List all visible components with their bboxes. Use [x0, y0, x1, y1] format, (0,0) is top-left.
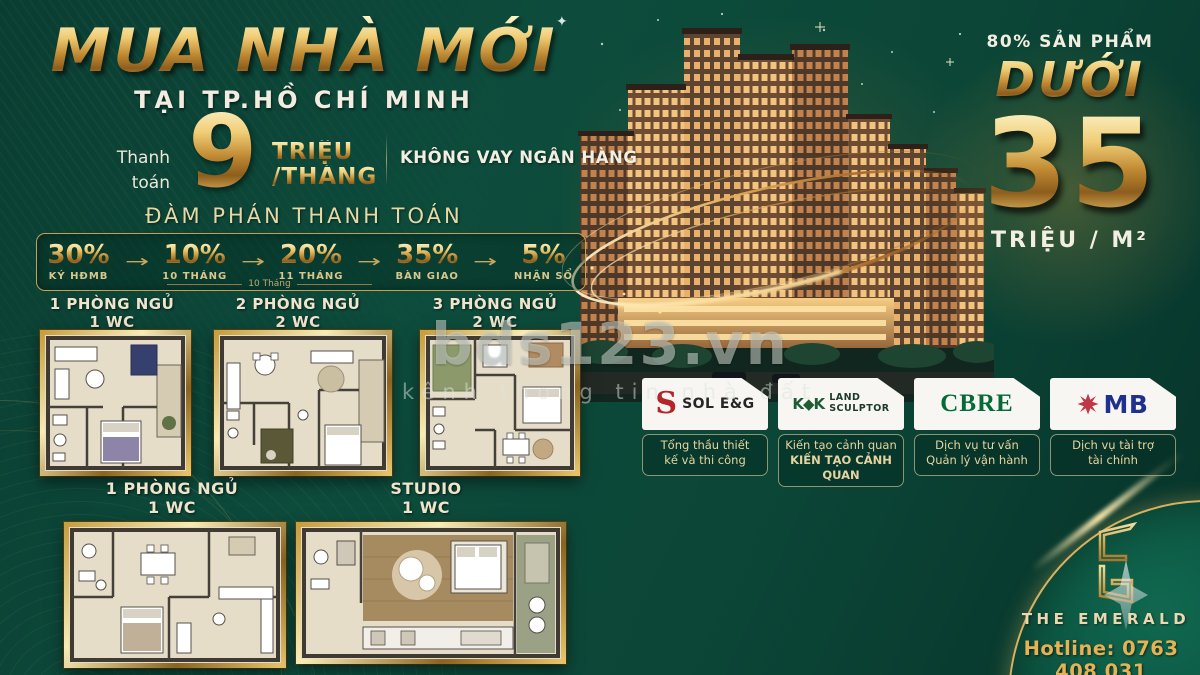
floorplan-label: 2 PHÒNG NGỦ2 WC — [212, 296, 384, 331]
caption-line: Tổng thầu thiết — [647, 438, 763, 453]
floorplan-label: 3 PHÒNG NGỦ2 WC — [418, 296, 572, 331]
floorplan-rooms: 1 PHÒNG NGỦ — [36, 296, 188, 314]
partner-name: LANDSCULPTOR — [829, 393, 889, 415]
schedule-step: 20% 11 THÁNG — [270, 242, 352, 282]
partner-card-mb: MB Dịch vụ tài trợ tài chính — [1050, 378, 1176, 487]
sol-s-icon: S — [655, 389, 677, 419]
payment-unit-top: TRIỆU — [272, 140, 377, 165]
cbre-logo: CBRE — [914, 378, 1040, 430]
arrow-right-icon: → — [241, 252, 265, 272]
partner-card-landsculptor: K◆K LANDSCULPTOR Kiến tạo cảnh quan KIẾN… — [778, 378, 904, 487]
developer-brand: THE EMERALD — [1018, 610, 1194, 628]
poster: MUA NHÀ MỚI ✦ TẠI TP.HỒ CHÍ MINH Thanh t… — [0, 0, 1200, 675]
partner-caption: Dịch vụ tài trợ tài chính — [1050, 434, 1176, 476]
step-percent: 10% — [154, 242, 236, 268]
caption-line: tài chính — [1055, 453, 1171, 468]
floorplan-rooms: 2 PHÒNG NGỦ — [212, 296, 384, 314]
caption-line: Quản lý vận hành — [919, 453, 1035, 468]
partner-name: MB — [1104, 390, 1149, 419]
caption-line: KIẾN TẠO CẢNH QUAN — [783, 453, 899, 483]
arrow-right-icon: → — [125, 252, 149, 272]
schedule-step: 35% BÀN GIAO — [386, 242, 468, 282]
land-sculptor-emblem-icon: K◆K — [792, 395, 824, 413]
partner-caption: Kiến tạo cảnh quan KIẾN TẠO CẢNH QUAN — [778, 434, 904, 487]
no-loan-text: KHÔNG VAY NGÂN HÀNG — [400, 148, 637, 167]
arrow-right-icon: → — [357, 252, 381, 272]
step-percent: 35% — [386, 242, 468, 268]
floorplan-wc: 2 WC — [418, 314, 572, 332]
floorplan-wc: 2 WC — [212, 314, 384, 332]
duration-note: 10 Tháng — [167, 279, 372, 289]
mb-logo: MB — [1050, 378, 1176, 430]
floorplan-label: 1 PHÒNG NGỦ1 WC — [36, 296, 188, 331]
land-sculptor-logo: K◆K LANDSCULPTOR — [778, 378, 904, 430]
schedule-step: 10% 10 THÁNG — [154, 242, 236, 282]
floorplan-image-1br — [40, 330, 191, 476]
partner-card-sol: S SOL E&G Tổng thầu thiết kế và thi công — [642, 378, 768, 487]
partners-row: S SOL E&G Tổng thầu thiết kế và thi công… — [642, 378, 1176, 487]
schedule-heading: ĐÀM PHÁN THANH TOÁN — [0, 204, 608, 228]
payment-amount: 9 — [188, 104, 258, 199]
payment-prefix: Thanh toán — [104, 146, 170, 195]
partner-name: CBRE — [940, 390, 1013, 418]
floorplan-wc: 1 WC — [36, 314, 188, 332]
floorplan-rooms: STUDIO — [294, 480, 558, 499]
caption-line: Dịch vụ tài trợ — [1055, 438, 1171, 453]
main-title: MUA NHÀ MỚI — [0, 16, 608, 86]
caption-line: Dịch vụ tư vấn — [919, 438, 1035, 453]
floorplan-label: STUDIO1 WC — [294, 480, 558, 518]
floorplan-label: 1 PHÒNG NGỦ1 WC — [60, 480, 284, 518]
floorplan-rooms: 3 PHÒNG NGỦ — [418, 296, 572, 314]
caption-line: Kiến tạo cảnh quan — [783, 438, 899, 453]
step-label: BÀN GIAO — [386, 271, 468, 282]
step-percent: 20% — [270, 242, 352, 268]
step-percent: 5% — [503, 242, 585, 268]
step-label: KÝ HĐMB — [38, 271, 120, 282]
offer-number: 35 — [945, 108, 1195, 220]
schedule-step: 5% NHẬN SỔ — [503, 242, 585, 282]
step-label: NHẬN SỔ — [503, 271, 585, 282]
caption-line: kế và thi công — [647, 453, 763, 468]
floorplan-image-3br — [420, 330, 580, 476]
partner-caption: Tổng thầu thiết kế và thi công — [642, 434, 768, 476]
schedule-step: 30% KÝ HĐMB — [38, 242, 120, 282]
sol-eg-logo: S SOL E&G — [642, 378, 768, 430]
floorplan-wc: 1 WC — [294, 499, 558, 518]
payment-unit-bottom: /THÁNG — [272, 165, 377, 190]
offer-line1: 80% SẢN PHẨM — [945, 32, 1195, 52]
floorplan-image-2br — [214, 330, 392, 476]
hotline: Hotline: 0763 408 031 — [1002, 637, 1200, 675]
floorplan-image-studio — [296, 522, 566, 664]
step-percent: 30% — [38, 242, 120, 268]
partner-caption: Dịch vụ tư vấn Quản lý vận hành — [914, 434, 1040, 476]
partner-card-cbre: CBRE Dịch vụ tư vấn Quản lý vận hành — [914, 378, 1040, 487]
subtitle: TẠI TP.HỒ CHÍ MINH — [0, 86, 608, 114]
mb-star-icon — [1078, 394, 1099, 415]
payment-schedule: 30% KÝ HĐMB → 10% 10 THÁNG → 20% 11 THÁN… — [36, 233, 586, 291]
partner-name: SOL E&G — [682, 396, 755, 412]
floorplan-image-1br-b — [64, 522, 286, 668]
floorplan-wc: 1 WC — [60, 499, 284, 518]
divider — [386, 134, 387, 186]
floorplan-rooms: 1 PHÒNG NGỦ — [60, 480, 284, 499]
arrow-right-icon: → — [473, 252, 497, 272]
sparkle-icon: ✦ — [556, 14, 568, 30]
duration-note-text: 10 Tháng — [248, 279, 290, 289]
